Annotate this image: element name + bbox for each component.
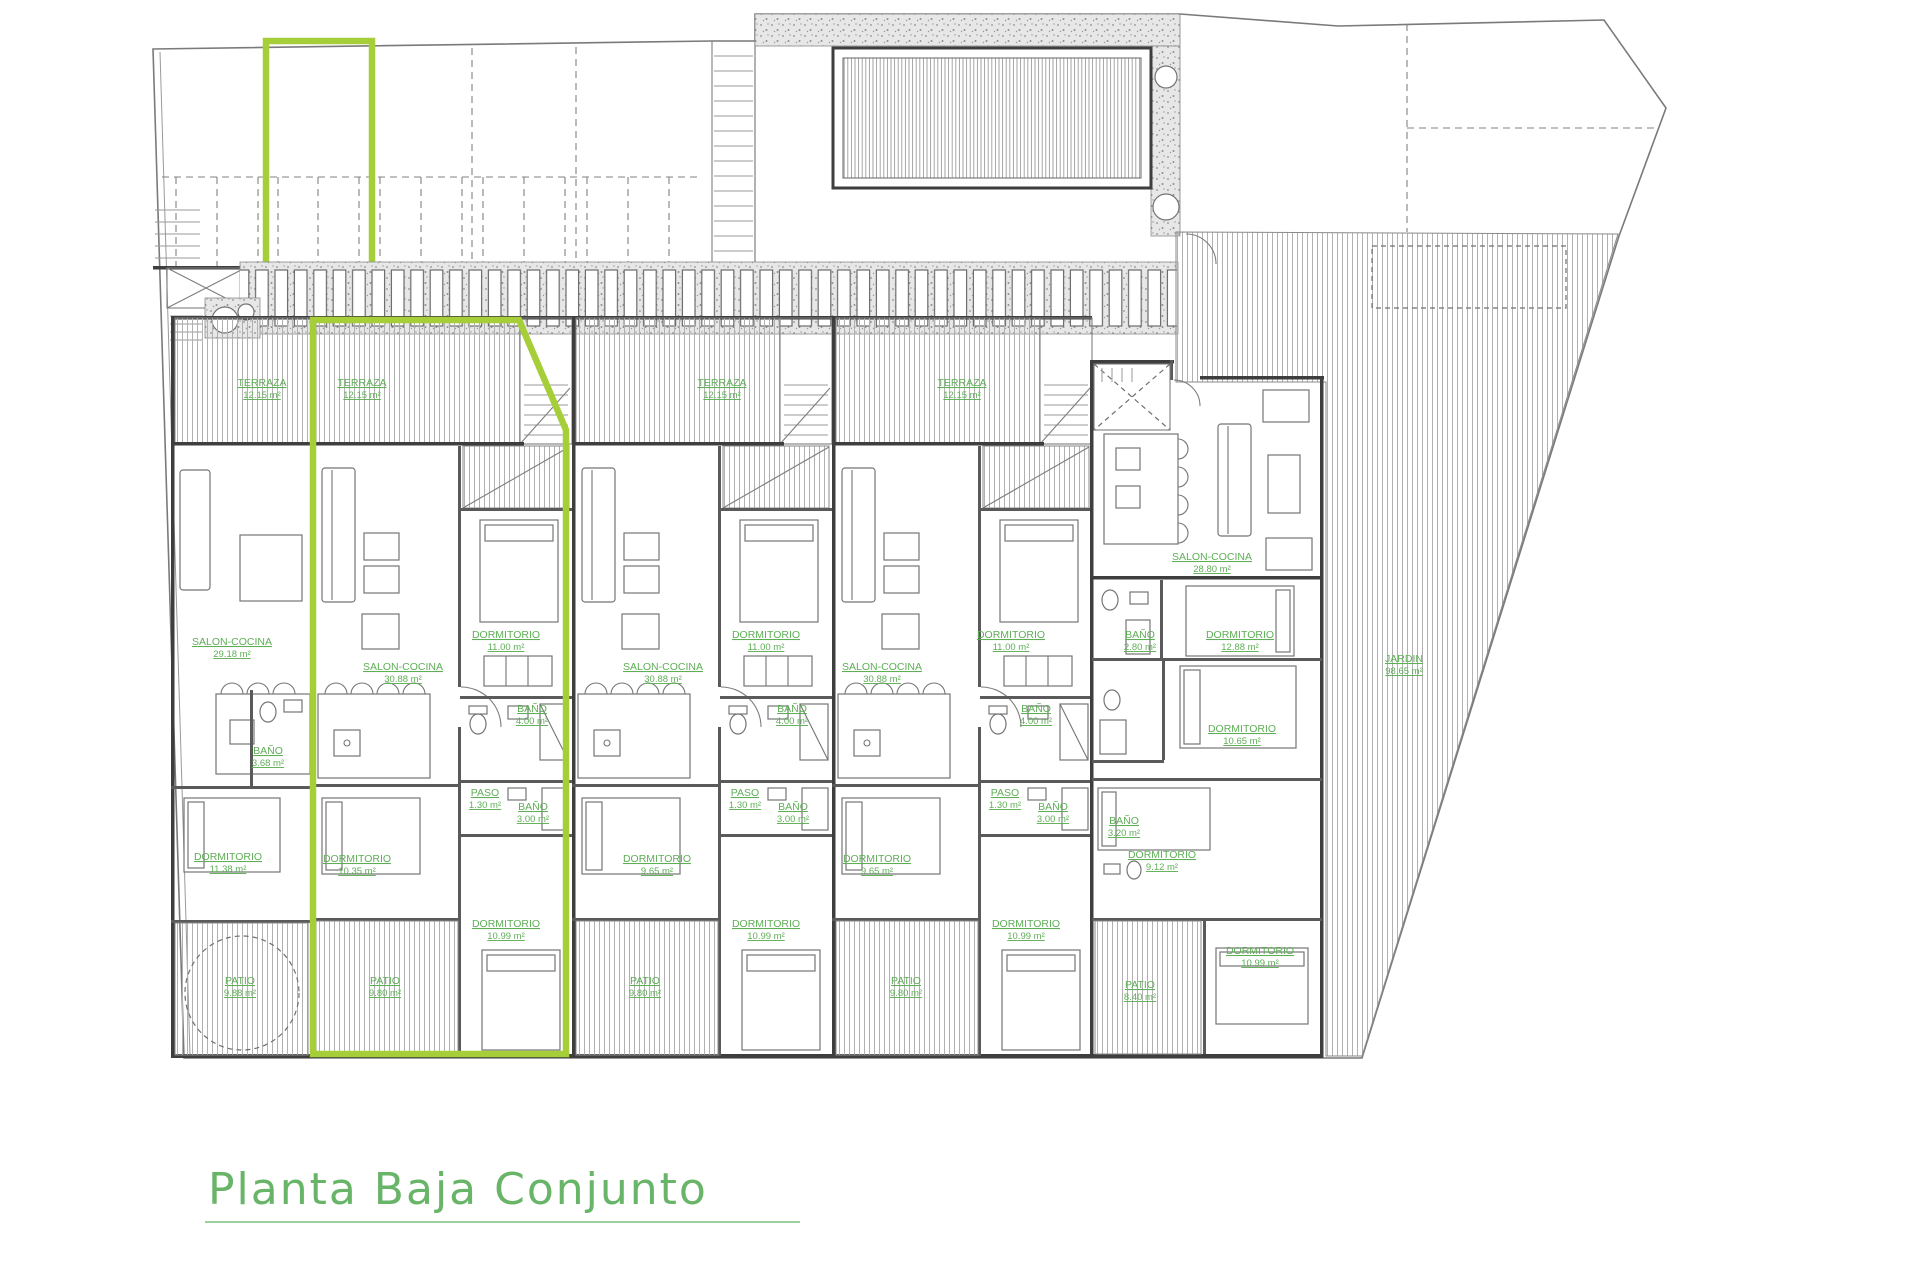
svg-text:10.99 m²: 10.99 m² (487, 931, 525, 942)
svg-text:29.18 m²: 29.18 m² (213, 649, 251, 660)
svg-text:9.88 m²: 9.88 m² (224, 988, 256, 999)
svg-text:11.38 m²: 11.38 m² (210, 864, 247, 875)
svg-text:PATIO: PATIO (630, 975, 660, 987)
svg-text:BAÑO: BAÑO (1021, 702, 1051, 715)
plan-title: Planta Baja Conjunto (205, 1164, 800, 1222)
svg-text:4.00 m²: 4.00 m² (776, 716, 808, 727)
svg-text:PASO: PASO (471, 787, 499, 799)
floor-plan-svg: TERRAZA12.15 m² SALON-COCINA29.18 m² BAÑ… (0, 0, 1920, 1280)
svg-text:12.15 m²: 12.15 m² (343, 390, 381, 401)
svg-text:11.00 m²: 11.00 m² (488, 642, 525, 653)
svg-text:TERRAZA: TERRAZA (697, 377, 746, 389)
svg-text:BAÑO: BAÑO (1038, 800, 1068, 813)
svg-text:9.65 m²: 9.65 m² (861, 866, 893, 877)
svg-text:TERRAZA: TERRAZA (237, 377, 286, 389)
svg-text:TERRAZA: TERRAZA (937, 377, 986, 389)
svg-text:BAÑO: BAÑO (1109, 814, 1139, 827)
svg-text:3.00 m²: 3.00 m² (1037, 814, 1069, 825)
svg-text:11.00 m²: 11.00 m² (748, 642, 785, 653)
svg-text:10.35 m²: 10.35 m² (338, 866, 376, 877)
svg-text:SALON-COCINA: SALON-COCINA (842, 661, 922, 673)
svg-text:12.15 m²: 12.15 m² (243, 390, 281, 401)
svg-text:DORMITORIO: DORMITORIO (1128, 849, 1196, 861)
svg-text:8.40 m²: 8.40 m² (1124, 992, 1156, 1003)
svg-text:10.99 m²: 10.99 m² (1241, 958, 1279, 969)
svg-text:BAÑO: BAÑO (518, 800, 548, 813)
svg-text:30.88 m²: 30.88 m² (863, 674, 901, 685)
svg-text:4.00 m²: 4.00 m² (516, 716, 548, 727)
svg-text:DORMITORIO: DORMITORIO (194, 851, 262, 863)
svg-text:SALON-COCINA: SALON-COCINA (1172, 551, 1252, 563)
svg-text:PATIO: PATIO (1125, 979, 1155, 991)
svg-text:DORMITORIO: DORMITORIO (623, 853, 691, 865)
svg-text:11.00 m²: 11.00 m² (993, 642, 1030, 653)
svg-text:PATIO: PATIO (225, 975, 255, 987)
svg-text:12.15 m²: 12.15 m² (703, 390, 741, 401)
svg-text:SALON-COCINA: SALON-COCINA (192, 636, 272, 648)
svg-text:DORMITORIO: DORMITORIO (472, 918, 540, 930)
svg-text:SALON-COCINA: SALON-COCINA (623, 661, 703, 673)
svg-text:9.12 m²: 9.12 m² (1146, 862, 1178, 873)
svg-text:10.99 m²: 10.99 m² (747, 931, 785, 942)
svg-text:SALON-COCINA: SALON-COCINA (363, 661, 443, 673)
tree-icon (1155, 66, 1177, 88)
svg-text:PATIO: PATIO (891, 975, 921, 987)
svg-text:2.80 m²: 2.80 m² (1124, 642, 1156, 653)
svg-text:9.80 m²: 9.80 m² (369, 988, 401, 999)
floor-plan-page: TERRAZA12.15 m² SALON-COCINA29.18 m² BAÑ… (0, 0, 1920, 1280)
svg-text:PASO: PASO (991, 787, 1019, 799)
svg-text:BAÑO: BAÑO (253, 744, 283, 757)
svg-text:DORMITORIO: DORMITORIO (843, 853, 911, 865)
svg-text:30.88 m²: 30.88 m² (644, 674, 682, 685)
svg-text:12.88 m²: 12.88 m² (1221, 642, 1259, 653)
svg-text:9.65 m²: 9.65 m² (641, 866, 673, 877)
svg-text:DORMITORIO: DORMITORIO (977, 629, 1045, 641)
svg-text:BAÑO: BAÑO (517, 702, 547, 715)
svg-text:98.65 m²: 98.65 m² (1385, 666, 1423, 677)
svg-text:1.30 m²: 1.30 m² (729, 800, 761, 811)
svg-text:DORMITORIO: DORMITORIO (323, 853, 391, 865)
svg-text:DORMITORIO: DORMITORIO (472, 629, 540, 641)
page-title: Planta Baja Conjunto (208, 1164, 708, 1215)
svg-text:1.30 m²: 1.30 m² (469, 800, 501, 811)
svg-text:DORMITORIO: DORMITORIO (1208, 723, 1276, 735)
svg-text:9.80 m²: 9.80 m² (890, 988, 922, 999)
svg-text:10.65 m²: 10.65 m² (1223, 736, 1261, 747)
svg-text:12.15 m²: 12.15 m² (943, 390, 981, 401)
svg-text:3.00 m²: 3.00 m² (517, 814, 549, 825)
svg-text:9.80 m²: 9.80 m² (629, 988, 661, 999)
svg-text:3.20 m²: 3.20 m² (1108, 828, 1140, 839)
svg-text:4.00 m²: 4.00 m² (1020, 716, 1052, 727)
svg-text:DORMITORIO: DORMITORIO (1206, 629, 1274, 641)
svg-text:28.80 m²: 28.80 m² (1193, 564, 1231, 575)
svg-text:JARDIN: JARDIN (1385, 653, 1423, 665)
svg-text:1.30 m²: 1.30 m² (989, 800, 1021, 811)
svg-text:DORMITORIO: DORMITORIO (732, 918, 800, 930)
svg-text:PATIO: PATIO (370, 975, 400, 987)
svg-text:3.00 m²: 3.00 m² (777, 814, 809, 825)
svg-text:BAÑO: BAÑO (1125, 628, 1155, 641)
svg-text:10.99 m²: 10.99 m² (1007, 931, 1045, 942)
svg-text:PASO: PASO (731, 787, 759, 799)
svg-text:BAÑO: BAÑO (778, 800, 808, 813)
svg-text:BAÑO: BAÑO (777, 702, 807, 715)
tree-icon (1153, 194, 1179, 220)
svg-text:30.88 m²: 30.88 m² (384, 674, 422, 685)
svg-text:TERRAZA: TERRAZA (337, 377, 386, 389)
svg-text:DORMITORIO: DORMITORIO (1226, 945, 1294, 957)
svg-text:DORMITORIO: DORMITORIO (732, 629, 800, 641)
svg-text:3.68 m²: 3.68 m² (252, 758, 284, 769)
svg-text:DORMITORIO: DORMITORIO (992, 918, 1060, 930)
